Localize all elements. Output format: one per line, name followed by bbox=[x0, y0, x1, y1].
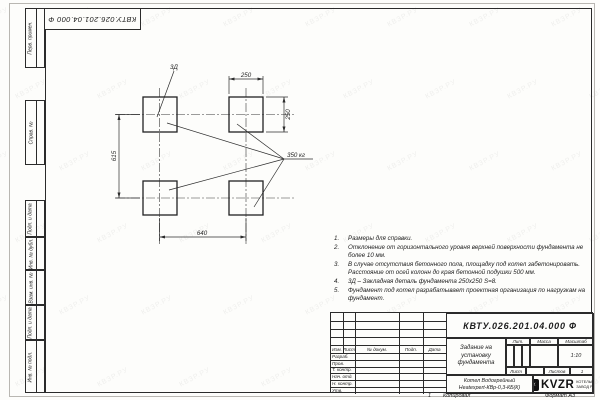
fold-doc-number-box: КВТУ.026.201.04.000 Ф bbox=[44, 8, 141, 30]
scale-header: Масштаб bbox=[558, 338, 594, 345]
row-tkontr: Т. контр. bbox=[332, 367, 355, 374]
kvzr-logo-text: KVZR bbox=[541, 379, 574, 391]
title-doc-number: КВТУ.026.201.04.000 Ф bbox=[446, 313, 594, 338]
sheets-label: Листов bbox=[544, 367, 570, 375]
dim-left-label: 615 bbox=[111, 150, 118, 161]
kvzr-logo-icon: ✶ bbox=[533, 379, 539, 391]
stamp-label: Справ. № bbox=[28, 121, 34, 144]
stamp-label: Инв. № подл. bbox=[28, 351, 34, 382]
leader-lines bbox=[157, 71, 313, 207]
col-podp: Подп. bbox=[399, 345, 423, 353]
stamp-sprav-no: Справ. № bbox=[25, 100, 45, 165]
mass-header: Масса bbox=[530, 338, 558, 345]
col-docnum: № докум. bbox=[355, 345, 399, 353]
note-item: 5.Фундамент под котел разрабатывает прое… bbox=[334, 287, 592, 303]
stamp-label: Подп. и дата bbox=[28, 203, 34, 234]
dimension-lines bbox=[115, 76, 288, 241]
dim-top-label: 250 bbox=[240, 72, 252, 79]
footer-number: 1 bbox=[428, 393, 431, 399]
fold-doc-number: КВТУ.026.201.04.000 Ф bbox=[48, 15, 136, 24]
row-prov: Пров. bbox=[332, 360, 355, 367]
title-block: Изм. Лист № докум. Подп. Дата Разраб. Пр… bbox=[330, 312, 593, 393]
foundation-plan-svg: 250 250 615 640 3Д 350 кг bbox=[95, 50, 325, 260]
dim-bottom-label: 640 bbox=[197, 230, 208, 237]
note-item: 1.Размеры для справки. bbox=[334, 235, 592, 243]
stamp-inv-dubl: Инв. № дубл. bbox=[25, 237, 45, 270]
footer-format: Формат А3 bbox=[545, 393, 575, 399]
product-line1: Котел Водогрейный bbox=[459, 378, 520, 385]
sheet-value bbox=[526, 367, 544, 375]
notes-list: 1.Размеры для справки. 2.Отклонение от г… bbox=[334, 235, 592, 305]
product-name-cell: Котел Водогрейный Heatexpert-КВр-0,3-КБ(… bbox=[446, 375, 533, 394]
stamp-label: Взам. инв. № bbox=[28, 272, 34, 303]
note-item: 4.3Д – Закладная деталь фундамента 250х2… bbox=[334, 278, 592, 286]
drawing-sheet: КВЗР.РУКВЗР.РУКВЗР.РУКВЗР.РУКВЗР.РУКВЗР.… bbox=[0, 0, 600, 400]
lit-cell-1 bbox=[506, 345, 514, 367]
note-item: 2.Отклонение от горизонтального уровня в… bbox=[334, 244, 592, 260]
stamp-perv-primen: Перв. примен. bbox=[25, 8, 45, 68]
footer-copied: Копировал bbox=[443, 393, 470, 399]
lit-cell-3 bbox=[522, 345, 530, 367]
note-item: 3.В случае отсутствия бетонного пола, пл… bbox=[334, 261, 592, 277]
row-nkontr: Н. контр. bbox=[332, 380, 355, 387]
mass-cell bbox=[530, 345, 558, 367]
stamp-podp-data-2: Подп. и дата bbox=[25, 305, 45, 340]
stamp-label: Перв. примен. bbox=[28, 21, 34, 54]
col-izm: Изм. bbox=[331, 345, 343, 353]
stamp-vzam-inv: Взам. инв. № bbox=[25, 270, 45, 305]
dim-right-label: 250 bbox=[285, 109, 292, 121]
detail-leader-label: 3Д bbox=[170, 64, 178, 71]
row-nachotd: Нач. отд. bbox=[332, 373, 355, 380]
title-text: Задание на установку фундамента bbox=[446, 338, 506, 375]
load-leader-label: 350 кг bbox=[287, 152, 305, 159]
col-list: Лист bbox=[343, 345, 355, 353]
stamp-podp-data-1: Подп. и дата bbox=[25, 200, 45, 237]
row-utv: Утв. bbox=[332, 387, 355, 394]
stamp-label: Инв. № дубл. bbox=[28, 238, 34, 269]
row-razrab: Разраб. bbox=[332, 353, 355, 360]
lit-header: Лит. bbox=[506, 338, 530, 345]
stamp-inv-podl: Инв. № подл. bbox=[25, 340, 45, 393]
sheets-value: 1 bbox=[570, 367, 594, 375]
logo-cell: ✶ KVZR КОТЕЛЬНЫЙ ЗАВОД РЭП bbox=[533, 375, 594, 394]
sheet-label: Лист bbox=[506, 367, 526, 375]
logo-sub2: ЗАВОД РЭП bbox=[576, 385, 594, 389]
scale-value: 1:10 bbox=[558, 345, 594, 367]
col-data: Дата bbox=[423, 345, 446, 353]
logo-sub1: КОТЕЛЬНЫЙ bbox=[576, 380, 594, 384]
lit-cell-2 bbox=[514, 345, 522, 367]
stamp-label: Подп. и дата bbox=[28, 307, 34, 338]
product-line2: Heatexpert-КВр-0,3-КБ(К) bbox=[459, 385, 520, 392]
